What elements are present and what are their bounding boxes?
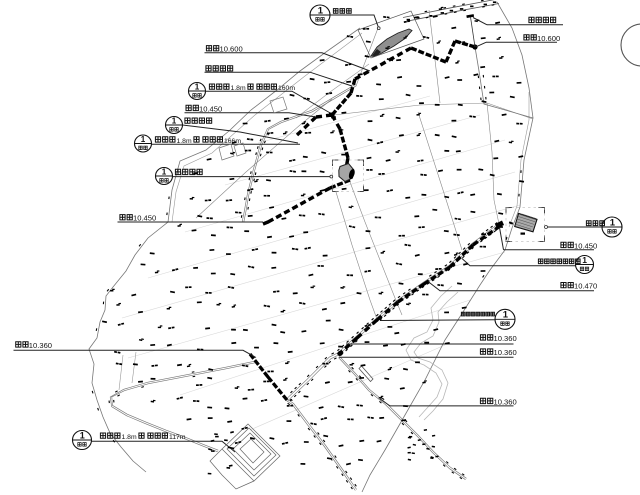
svg-text:10.470: 10.470 [574,282,597,291]
svg-text:1: 1 [318,5,324,16]
svg-text:1: 1 [195,82,200,91]
svg-text:10.600: 10.600 [537,34,560,43]
svg-text:1: 1 [503,310,509,321]
svg-text:1: 1 [610,217,616,228]
svg-text:10.360: 10.360 [494,348,517,357]
svg-text:10.450: 10.450 [199,104,222,113]
svg-text:10.450: 10.450 [133,214,156,223]
svg-text:1: 1 [162,167,167,176]
svg-text:10.450: 10.450 [574,241,597,250]
svg-text:10.360: 10.360 [494,397,517,406]
svg-text:1: 1 [141,135,146,144]
svg-text:1: 1 [582,255,587,265]
svg-text:1: 1 [80,430,85,440]
svg-text:1.8m: 1.8m [122,434,137,441]
svg-text:117m: 117m [169,434,186,441]
svg-text:10.360: 10.360 [29,341,52,350]
svg-text:10.360: 10.360 [494,334,517,343]
svg-text:1: 1 [172,116,177,125]
